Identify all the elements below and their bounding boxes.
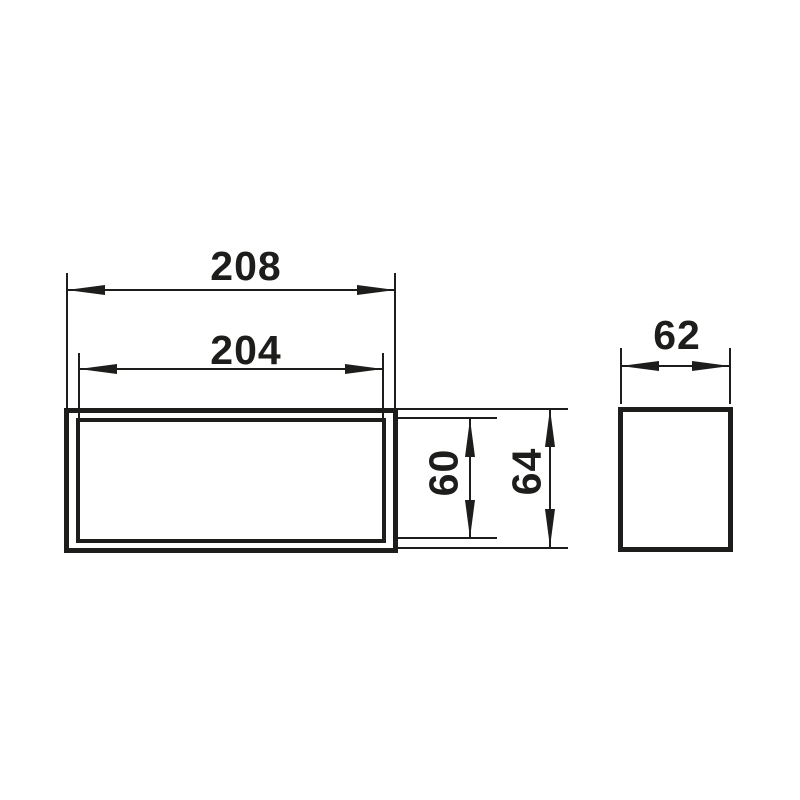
dim-outer-width-arrowhead-left-icon <box>67 285 105 295</box>
dim-depth-label: 62 <box>617 315 737 356</box>
dim-inner-width-arrowhead-left-icon <box>79 364 117 374</box>
front-view-inner-outline <box>76 418 386 543</box>
dim-inner-width-extension-left <box>78 353 80 419</box>
technical-drawing-canvas: 208 204 60 64 62 <box>0 0 800 800</box>
dim-depth-extension-right <box>729 348 731 404</box>
dim-outer-width-line <box>67 289 395 291</box>
dim-inner-height-arrowhead-top-icon <box>465 419 475 457</box>
dim-inner-height-extension-bottom <box>393 537 497 539</box>
dim-depth-arrowhead-right-icon <box>692 361 730 371</box>
dim-depth-extension-left <box>620 348 622 404</box>
dim-outer-width-arrowhead-right-icon <box>357 285 395 295</box>
side-view-outline <box>618 407 733 552</box>
dim-inner-width-arrowhead-right-icon <box>345 364 383 374</box>
dim-outer-height-extension-top <box>397 408 568 410</box>
dim-outer-height-label: 64 <box>507 412 548 532</box>
dim-inner-height-label: 60 <box>424 413 465 533</box>
dim-inner-width-extension-right <box>382 353 384 419</box>
dim-outer-height-extension-bottom <box>397 547 568 549</box>
dim-depth-arrowhead-left-icon <box>621 361 659 371</box>
dim-inner-height-arrowhead-bottom-icon <box>465 500 475 538</box>
dim-inner-width-label: 204 <box>186 330 306 371</box>
dim-outer-width-label: 208 <box>186 246 306 287</box>
